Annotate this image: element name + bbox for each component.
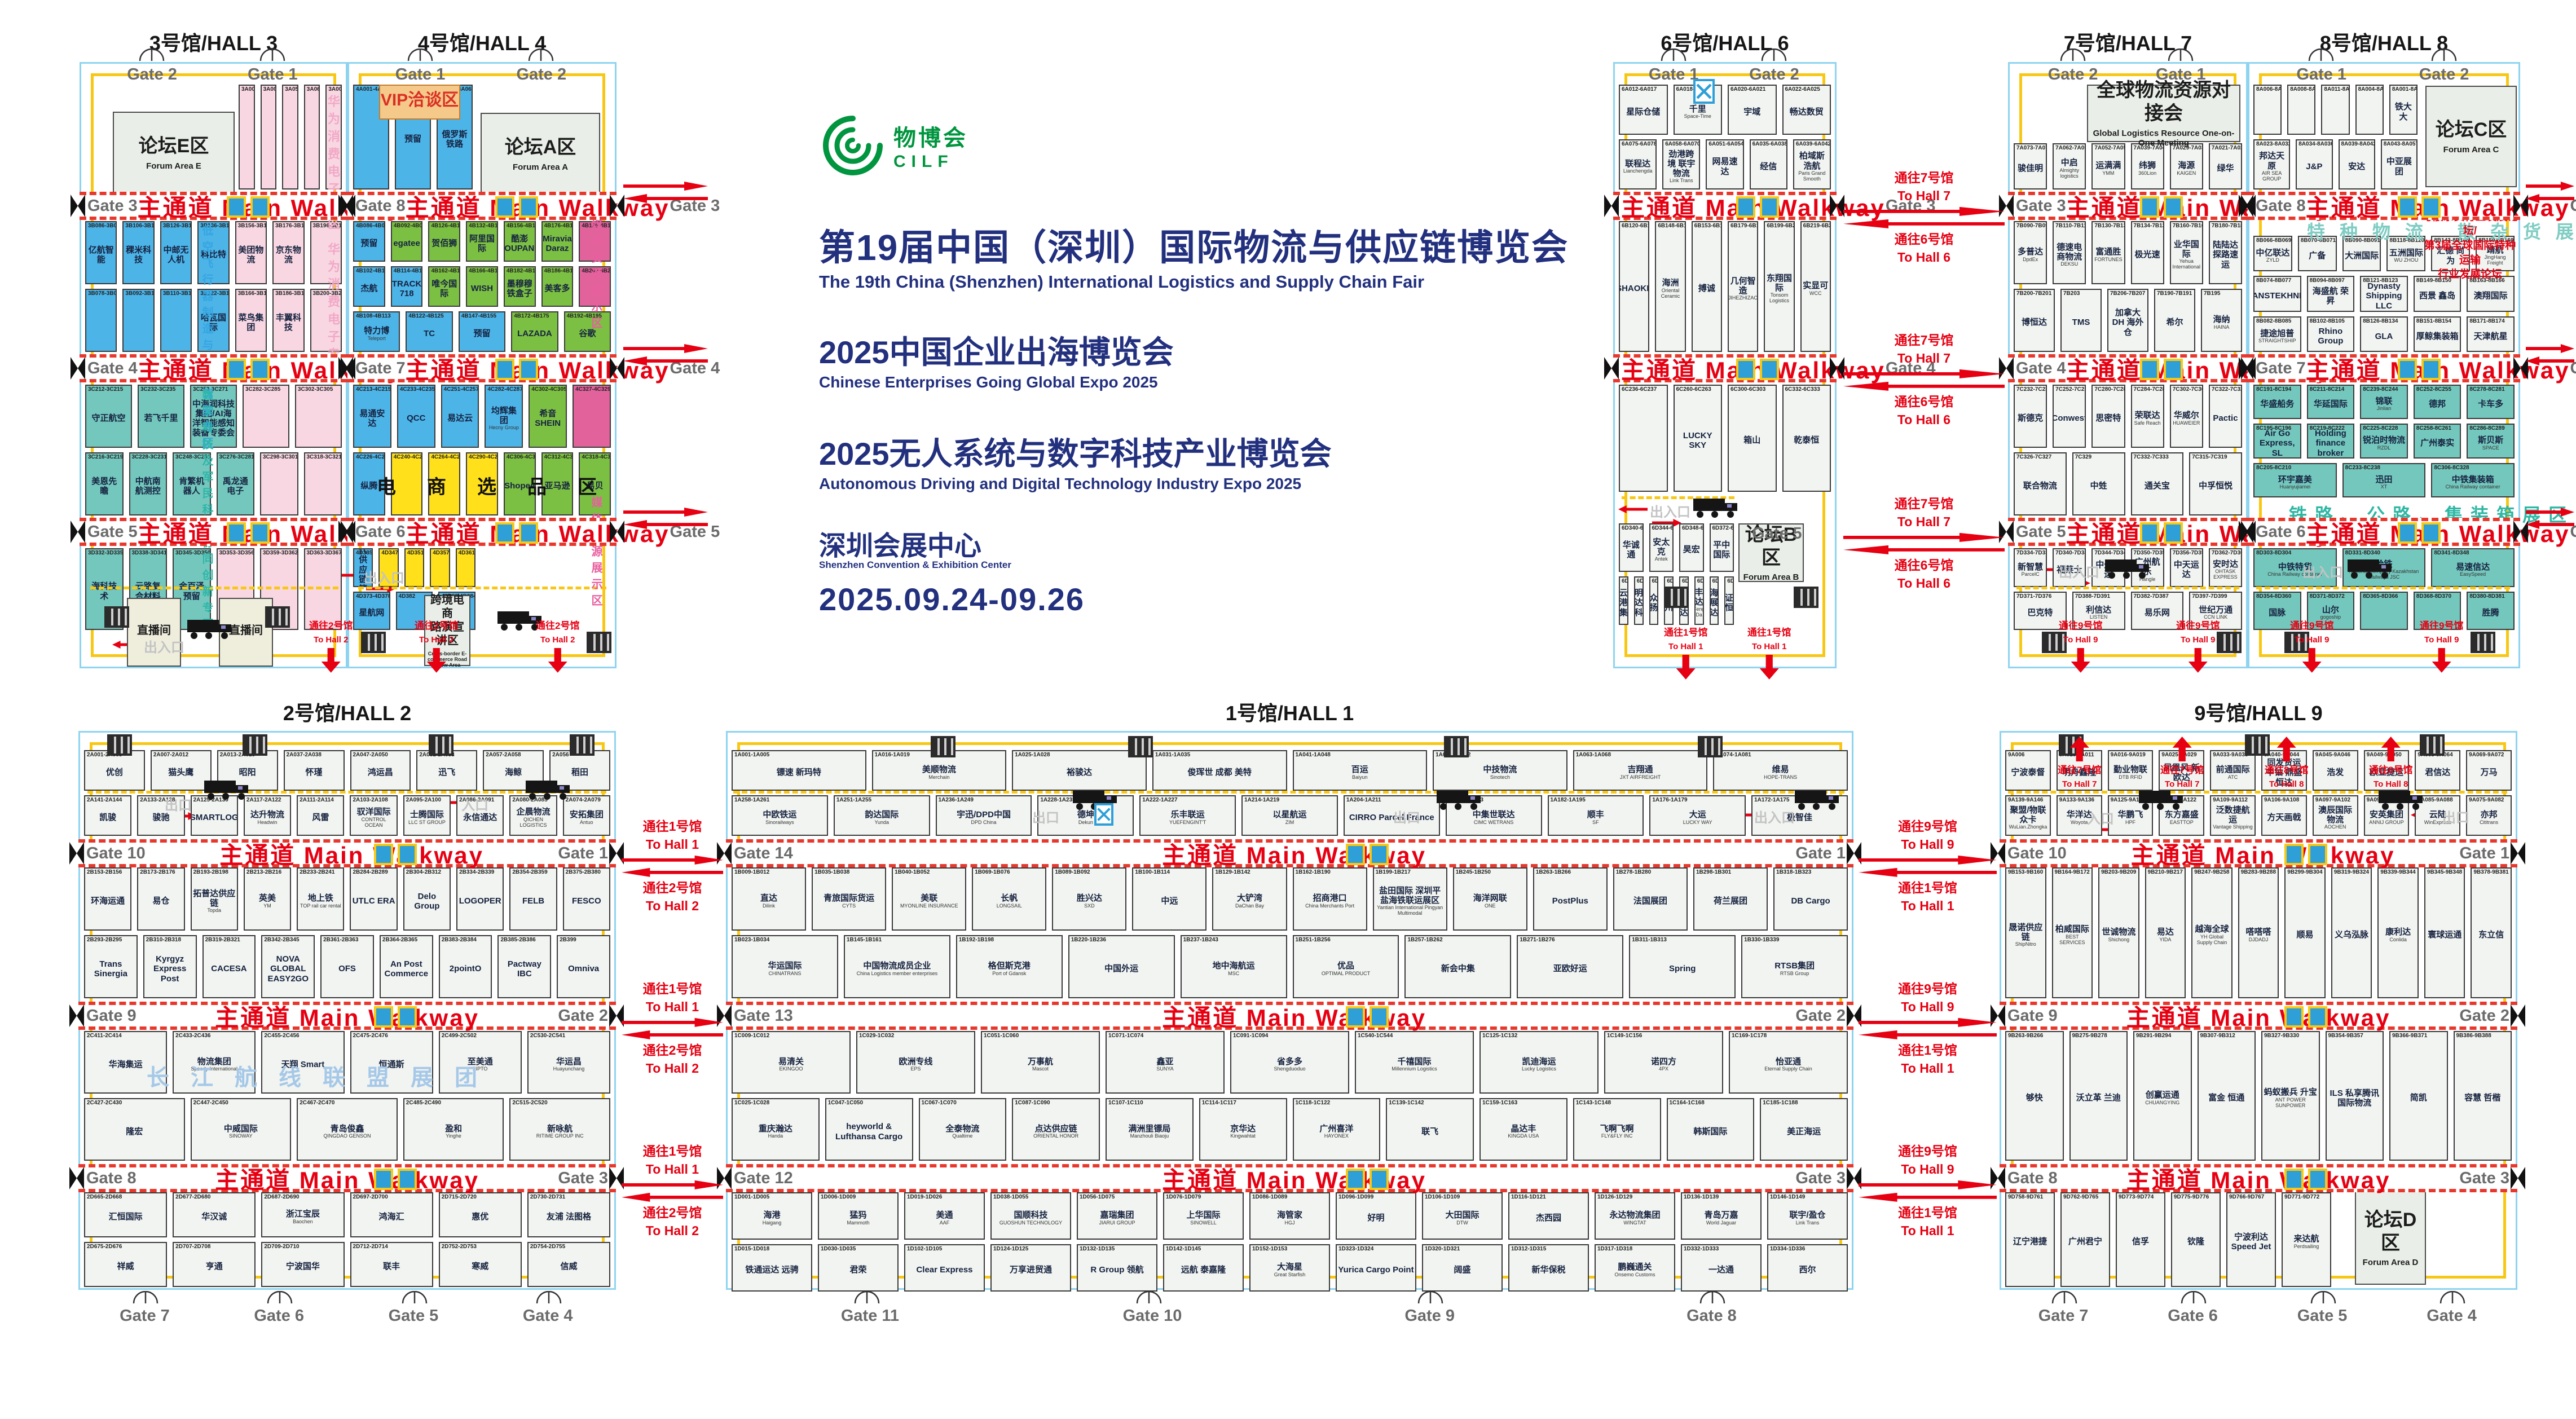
booth-name: 安时达	[2213, 559, 2238, 569]
transfer-label-en: To Hall 6	[1897, 576, 1950, 590]
booth-name: 富金 恒通	[2208, 1093, 2244, 1103]
booth: 2B399Omniva	[557, 935, 610, 998]
booth-id: 2B319-2B321	[205, 937, 240, 943]
gate-label-bottom: Gate 7	[120, 1307, 170, 1325]
transfer-label-en: To Hall 2	[540, 635, 575, 645]
booth-id: 7C252-7C255	[2055, 386, 2086, 393]
booth-id: 1C164-1C168	[1670, 1100, 1705, 1106]
arrow-left-icon	[622, 1030, 723, 1039]
booth-id: 6D356-6D357	[1637, 578, 1644, 584]
hall-title: 4号馆/HALL 4	[347, 27, 617, 56]
booth-id: 6B148-6B152	[1658, 223, 1685, 229]
booth-name: 唯今国际	[430, 279, 458, 299]
booth-id: 1D126-1D129	[1597, 1194, 1632, 1200]
booth-name-en: DaChan Bay	[1235, 904, 1264, 909]
hydrant-icon	[2398, 359, 2441, 380]
hall-gap-transfer	[2526, 182, 2574, 203]
booth: 7A039-7A042纬狮360Lion	[2131, 143, 2164, 190]
hydrant-icon	[227, 522, 270, 544]
booth: 7B134-7B135极光速	[2131, 221, 2164, 284]
booth-name: 怡亚通	[1776, 1057, 1801, 1067]
booth: 7C280-7C283思密特	[2091, 385, 2125, 448]
booth-name-en: MSC	[1228, 971, 1239, 977]
zone-label: 直播间	[137, 624, 171, 637]
booth-name-en: Sinotech	[1490, 775, 1510, 781]
booth-name: ILS 私享腾讯国际物流	[2328, 1089, 2382, 1108]
gate-label-bottom: Gate 10	[1123, 1307, 1182, 1325]
booth-id: 4B156-4B159	[507, 223, 536, 229]
booth-id: 3A068-3A071	[307, 86, 320, 92]
booth-name: 德邦	[2429, 399, 2446, 409]
booth-id: 1B298-1B301	[1696, 869, 1731, 875]
booth: 6A039-6A042柏域斯浩航Paris Grand Smooth	[1793, 139, 1831, 190]
hall-title: 6号馆/HALL 6	[1613, 27, 1837, 56]
booth: 7B206-7B207加拿大DH 海外仓	[2107, 289, 2148, 352]
gate-label-bottom: Gate 8	[1686, 1307, 1737, 1325]
hall-transfer-down: 通往9号馆To Hall 9	[2420, 620, 2463, 673]
booth: 1D124-1D125万享进贸通	[990, 1244, 1071, 1292]
booth-name: 丰翼科技	[275, 313, 302, 333]
event-title1-en: The 19th China (Shenzhen) International …	[819, 272, 1424, 292]
booth-name: 联程达	[1625, 159, 1650, 169]
booth-id: 2A117-2A122	[246, 797, 281, 803]
booth: 9B275-9B278沃立革 兰迪	[2069, 1031, 2128, 1161]
horizontal-zone-label: 长江航线联盟展团	[147, 1059, 499, 1092]
event-logo: 物博会 CILF	[819, 112, 968, 179]
gate-label-top: Gate 2	[2048, 65, 2098, 84]
booth: 7B180-7B183陆陆达 探路速运	[2209, 221, 2242, 284]
booth-name: 美恩先瞻	[87, 477, 121, 496]
booth-id: 4B162-4B165	[431, 268, 460, 274]
booth-name: 华延国际	[2314, 399, 2348, 409]
booth-id: 4D373-4D378	[356, 593, 390, 600]
booth: 2A007-2A012猫头鹰	[151, 750, 212, 791]
booth-row: 6B120-6B133SHAOKE6B148-6B152海洲Oriental C…	[1619, 221, 1831, 352]
booth-id: 1C139-1C142	[1389, 1100, 1424, 1106]
booth-name-en: GUOSHUN TECHNOLOGY	[999, 1220, 1062, 1226]
arrow-down-icon	[322, 648, 341, 673]
booth: 2B319-2B321CACESA	[202, 935, 256, 998]
booth-id: 3C232-3C235	[140, 386, 175, 393]
door-icon	[1417, 1291, 1443, 1306]
hydrant-icon	[1736, 196, 1779, 218]
booth-name: 新咏航	[547, 1124, 573, 1134]
transfer-label: 通往1号馆	[643, 981, 702, 996]
booth-name: 柏域斯浩航	[1795, 151, 1829, 171]
booth: 1C025-1C028重庆瀚达Handa	[732, 1098, 820, 1161]
arrow-right-icon	[1843, 533, 2005, 542]
booth-row: 2B293-2B295Trans Sinergia2B310-2B318Kyrg…	[84, 935, 610, 998]
booth: 8C258-8C261广州泰实	[2414, 424, 2461, 458]
booth: 9B354-9B357ILS 私享腾讯国际物流	[2326, 1031, 2384, 1161]
booth: 9B283-9B288嗒嗒嗒DJDADJ	[2238, 867, 2279, 998]
booth-name: 思密特	[2095, 413, 2121, 423]
booth: 2D677-2D680华汉诚	[173, 1192, 256, 1237]
booth: 8A011-8A012	[2321, 85, 2349, 135]
booth: 7A029-7A032海源KAIGEN	[2170, 143, 2203, 190]
booth: 1D323-1D324Yurica Cargo Point	[1336, 1244, 1416, 1292]
gate-label-bottom: Gate 11	[841, 1307, 899, 1325]
booth: 4C213-4C215易通安达	[353, 385, 391, 448]
booth: 9D758-9D761辽宁港捷	[2005, 1192, 2055, 1287]
booth-name: 博恒达	[2022, 318, 2047, 327]
booth: 7A073-7A077骏佳明	[2014, 143, 2047, 190]
loading-line	[358, 587, 606, 589]
booth: 8B102-8B105Rhino Group	[2307, 316, 2355, 352]
booth-name: 中远	[1161, 896, 1178, 906]
booth: 7C329中甡	[2072, 452, 2125, 515]
booth-id: 8A004-8A005	[2358, 86, 2384, 92]
booth-id: 1A228-1A235	[1040, 797, 1075, 803]
booth-name: 锐泊时物流	[2363, 435, 2405, 445]
booth-id: 9B275-9B278	[2072, 1033, 2107, 1039]
booth-name: 美顺物流	[922, 765, 956, 774]
booth-id: 4B182-4B185	[507, 268, 536, 274]
booth-id: 2B375-2B380	[566, 869, 601, 875]
booth-id: 6A022-6A025	[1785, 86, 1820, 92]
booth: 7D334-7D337新智慧ParcelC	[2014, 548, 2047, 587]
booth-band: 7B090-7B095多普达DpdEx7B110-7B113德速电商物流DEKS…	[2014, 221, 2242, 352]
gate-label-top: Gate 1	[248, 65, 298, 84]
booth: 3A007	[239, 85, 255, 190]
booth-row: 8A023-8A032邦达天原AIR SEA GROUP8A034-8A036J…	[2253, 139, 2418, 190]
booth-id: 7C284-7C285	[2134, 386, 2164, 393]
gate-label-left: Gate 6	[2256, 523, 2306, 541]
entrance-exit-label: 出入口	[364, 567, 404, 587]
booth-id: 4D382	[399, 593, 415, 600]
booth-name-en: Shichong	[2108, 937, 2130, 943]
booth-name-en: DPD China	[971, 820, 997, 826]
booth-id: 4B122-4B125	[408, 313, 443, 319]
booth-id: 1D142-1D145	[1166, 1246, 1201, 1252]
booth: 9B319-9B324义乌泓脉	[2331, 867, 2372, 998]
booth-id: 3B166-3B175	[238, 290, 267, 297]
booth: 3B156-3B163美团物流	[235, 221, 267, 284]
booth-row: 8B082-8B085捷途旭普STRAIGHTSHIP8B102-8B105Rh…	[2253, 316, 2515, 352]
gate-label-right: Gate 1	[2459, 844, 2509, 863]
booth-name: LOGOPER	[459, 896, 501, 906]
booth: 4B166-4B169WISH	[466, 266, 498, 307]
booth: 8B082-8B085捷途旭普STRAIGHTSHIP	[2253, 316, 2301, 352]
booth-row: 6A012-6A017星际仓储6A018-6A019千里Space-Time6A…	[1619, 85, 1831, 135]
booth: 2D712-2D714联丰	[350, 1242, 433, 1287]
booth-name: 中国物流成员企业	[863, 961, 931, 971]
booth-band: 9D758-9D761辽宁港捷9D762-9D765广州君宁9D773-9D77…	[2005, 1192, 2331, 1287]
booth-name: 来达航	[2293, 1234, 2319, 1244]
booth-name: 国顺科技	[1014, 1210, 1047, 1220]
booth-name: 康利达	[2385, 927, 2411, 937]
walkway-label: 主通道 Main Walkway	[219, 836, 484, 871]
booth: 6C260-6C263LUCKY SKY	[1674, 385, 1723, 492]
booth: 1D076-1D079上华国际SINOWELL	[1163, 1192, 1244, 1240]
booth-name: 捷途旭普	[2260, 329, 2294, 338]
truck-icon	[2138, 788, 2186, 814]
transfer-label-en: To Hall 2	[646, 898, 699, 913]
booth-name: 祥威	[117, 1262, 134, 1271]
booth-id: 7B195	[2204, 290, 2220, 297]
booth-name-en: Lucky Logistics	[1522, 1067, 1556, 1072]
booth: 7B110-7B113德速电商物流DEKSU	[2053, 221, 2086, 284]
booth-name: 晶达丰	[1511, 1124, 1536, 1134]
door-icon	[2060, 49, 2086, 64]
booth-name: 胜腾	[2482, 608, 2499, 618]
booth-name: 昭阳	[239, 768, 256, 777]
door-icon	[1699, 1291, 1725, 1306]
dock-door-icon	[1698, 736, 1723, 757]
booth: 1C143-1C148飞啊飞啊FLY&FLY INC	[1573, 1098, 1661, 1161]
booth-name-en: FLY&FLY INC	[1601, 1134, 1633, 1139]
walkway-label: 主通道 Main Walkway	[2131, 836, 2396, 871]
booth-name-en: Vantage Shipping	[2213, 825, 2252, 830]
booth: 1D317-1D318鹏巍通关Onsemo Customs	[1595, 1244, 1675, 1292]
gate-label-left: Gate 5	[2016, 523, 2066, 541]
booth-row: 9B153-9B160晟诺供应链ShipNitro9B164-9B172柏威国际…	[2005, 867, 2512, 998]
booth-name: 东翔国际	[1766, 274, 1792, 293]
booth-id: 8B126-8B134	[2363, 318, 2398, 324]
arrow-left-icon	[623, 194, 708, 203]
booth: 1C139-1C142联飞	[1386, 1098, 1474, 1161]
booth: 2B293-2B295Trans Sinergia	[84, 935, 138, 998]
entrance-exit-label: 出口	[2442, 807, 2469, 826]
booth-id: 7D371-7D376	[2016, 593, 2051, 600]
booth-name: 安太克	[1652, 537, 1672, 557]
booth-name-en: Almighty logistics	[2055, 168, 2084, 179]
booth-name: 业华国际	[2172, 240, 2201, 259]
booth: 1C047-1C050heyworld & Lufthansa Cargo	[825, 1098, 913, 1161]
booth-id: 4C318-4C321	[582, 454, 611, 460]
booth-id: 1C143-1C148	[1576, 1100, 1611, 1106]
booth: 1D152-1D153大海星Great Starfish	[1249, 1244, 1330, 1292]
booth-name: DB Cargo	[1791, 896, 1830, 906]
booth: 7B130-7B133富通胜FORTUNES	[2091, 221, 2125, 284]
booth: 2A103-2A108驭洋国际CONTROL OCEAN	[350, 795, 397, 836]
booth-name-en: Hecny Group	[489, 425, 519, 431]
booth-name: 沃立革 兰迪	[2076, 1093, 2121, 1103]
booth-id: 4B176-4B179	[544, 223, 574, 229]
gate-label-top: Gate 1	[395, 65, 446, 84]
booth-id: 1D332-1D333	[1684, 1246, 1719, 1252]
booth-name-en: Port of Gdansk	[992, 971, 1026, 977]
booth: 2C530-2C541华运昌Huayunchang	[527, 1031, 610, 1094]
booth-id: 7D334-7D337	[2016, 550, 2047, 556]
booth-name-en: Sinorailways	[765, 820, 794, 826]
booth-name: 阔盛	[1454, 1265, 1470, 1275]
booth-name: 青旅国际货运	[824, 893, 874, 903]
booth-name: 陆陆达 探路速运	[2211, 240, 2240, 270]
booth-name-en: WINGTAT	[1623, 1220, 1646, 1226]
main-walkway: Gate 4主通道 Main WalkwayGate 7	[80, 354, 347, 382]
booth-name: Air Go Express, SL	[2256, 429, 2299, 458]
booth-name: 中国外运	[1104, 964, 1138, 973]
transfer-label: 通往1号馆	[1664, 627, 1707, 638]
booth-name-en: DpdEx	[2023, 257, 2038, 263]
transfer-label: 通往2号馆	[643, 1205, 702, 1220]
booth-name: 海鲸	[505, 768, 522, 777]
booth: 7B200-7B201博恒达	[2014, 289, 2055, 352]
transfer-label-en: To Hall 9	[2181, 635, 2215, 645]
transfer-label: 通往7号馆	[1895, 496, 1954, 511]
booth-id: 8C306-8C328	[2434, 465, 2469, 471]
booth-id: 1D116-1D121	[1511, 1194, 1546, 1200]
booth: 6D372-6D373平中国际	[1710, 523, 1734, 572]
booth-row: 1B023-1B034华运国际CHINATRANS1B145-1B161中国物流…	[732, 935, 1848, 998]
booth-name: 希尔	[2166, 318, 2183, 327]
hydrant-icon	[2398, 196, 2441, 218]
transfer-label-en: To Hall 8	[2374, 779, 2408, 789]
booth-name: 杰西园	[1536, 1213, 1561, 1223]
booth: 8A034-8A036J&P	[2296, 139, 2332, 190]
booth-name: 永达物流集团	[1609, 1210, 1660, 1220]
booth-name: 海洋网联	[1473, 893, 1507, 903]
logo-text-zh: 物博会	[893, 120, 968, 152]
transfer-label: 通往2号馆	[415, 620, 458, 632]
booth: 3C212-3C215守正航空	[85, 385, 132, 448]
booth-name: 守正航空	[91, 413, 125, 423]
booth-name: 俄罗斯铁路	[439, 130, 470, 149]
hall-title: 8号馆/HALL 8	[2248, 27, 2520, 56]
booth-id: 7A062-7A067	[2055, 145, 2086, 151]
booth: 1C051-1C060万事航Mascot	[981, 1031, 1100, 1094]
booth: 6A058-6A070劲港跨境 联宇物流Link Trans	[1662, 139, 1700, 190]
booth-id: 2D665-2D668	[87, 1194, 122, 1200]
booth-id: 7D340-7D343	[2055, 550, 2086, 556]
booth-id: 3D332-3D335	[88, 550, 123, 556]
booth-id: 8A043-8A057	[2384, 141, 2418, 147]
arrow-right-icon	[623, 182, 708, 191]
booth: 9A106-9A108方天画戟	[2261, 795, 2307, 836]
booth: 2B385-2B386Pactway IBC	[497, 935, 551, 998]
booth: 3C282-3C285	[243, 385, 289, 448]
booth-row: 7C326-7C327联合物流7C329中甡7C332-7C333通关宝7C31…	[2014, 452, 2242, 515]
booth-id: 8C252-8C255	[2416, 386, 2451, 393]
hall-gap-transfer	[623, 508, 708, 529]
booth-id: 1D152-1D153	[1252, 1246, 1287, 1252]
booth: 9B210-9B217易达YIDA	[2145, 867, 2186, 998]
booth: 1B069-1B076长帆LONGSAIL	[972, 867, 1046, 931]
booth: 2A095-2A100士腾国际LLC ST GROUP	[403, 795, 451, 836]
gate-label-right: Gate 3	[2459, 1169, 2509, 1188]
booth: 1C164-1C168韩斯国际	[1667, 1098, 1755, 1161]
booth-name: 中天运达	[2172, 560, 2201, 580]
booth: 9D773-9D774信孚	[2116, 1192, 2165, 1287]
booth-id: 4C240-4C243	[394, 454, 423, 460]
booth-id: 9B153-9B160	[2008, 869, 2043, 875]
door-icon	[133, 1291, 158, 1306]
main-walkway: Gate 14主通道 Main WalkwayGate 1	[726, 839, 1853, 867]
arrow-right-icon	[2526, 508, 2574, 517]
hydrant-icon	[1346, 1169, 1389, 1190]
door-icon	[2431, 49, 2457, 64]
booth: 1B145-1B161中国物流成员企业China Logistics membe…	[844, 935, 950, 998]
booth-name-en: Baiyun	[1352, 775, 1368, 781]
booth-id: 2A103-2A108	[353, 797, 387, 803]
booth-name-en: STRAIGHTSHIP	[2258, 338, 2296, 344]
booth-id: 8C258-8C261	[2416, 425, 2451, 431]
booth-name-en: CCN LINK	[2204, 615, 2227, 620]
booth-id: 2A111-2A114	[300, 797, 334, 803]
booth-band: 2C411-2C414华海集运2C433-2C436物流集团Speedy Int…	[84, 1031, 610, 1161]
booth-id: 4B132-4B137	[469, 223, 498, 229]
booth: 2C447-2C450中威国际SINOWAY	[191, 1098, 292, 1161]
booth-name: 极光速	[2135, 250, 2160, 259]
booth-id: 9A106-9A108	[2264, 797, 2299, 803]
booth: 6D340-6D341华诚通	[1619, 523, 1644, 572]
booth-name-en: Millennium Logistics	[1392, 1067, 1437, 1072]
transfer-label: 通往9号馆	[1898, 981, 1957, 996]
booth-id: 7B200-7B201	[2016, 290, 2051, 297]
booth-name: Yurica Cargo Point	[1338, 1265, 1414, 1275]
booth-id: 9B291-9B294	[2136, 1033, 2171, 1039]
booth: 2D665-2D668汇恒国际	[84, 1192, 167, 1237]
transfer-label: 通往8号馆	[2265, 765, 2308, 776]
booth-id: 1C114-1C117	[1202, 1100, 1236, 1106]
booth: 2B375-2B380FESCO	[563, 867, 610, 931]
booth-band: 9B153-9B160晟诺供应链ShipNitro9B164-9B172柏威国际…	[2005, 867, 2512, 998]
booth-name-en: EPS	[910, 1067, 921, 1072]
booth: 8C286-8C289斯贝斯SPACE	[2467, 424, 2515, 458]
zone-label-en: Global Logistics Resource One-on-One Mee…	[2088, 129, 2239, 148]
booth-name-en: Yinghe	[446, 1134, 461, 1139]
booth: 9A063-9A064君信达	[2415, 750, 2460, 791]
booth-name-en: JIHEZHIZAO	[1728, 296, 1758, 301]
booth: 2B361-2B363OFS	[320, 935, 374, 998]
hall-transfer-down: 通往2号馆To Hall 2	[536, 620, 579, 673]
booth-id: 2C485-2C490	[406, 1100, 441, 1106]
booth-name: 中欧铁运	[763, 810, 796, 819]
booth-name-en: 360Lion	[2138, 171, 2156, 177]
booth-name: 铁大大	[2392, 102, 2415, 122]
booth: 3C228-3C231中航南航测控	[129, 452, 168, 515]
booth-name-en: AOCHEN	[2324, 825, 2346, 830]
booth-name: 星航网	[359, 608, 384, 618]
booth: 8C205-8C210环宇嘉美Huanyujiamei	[2253, 463, 2337, 497]
booth-name-en: DEKSU	[2060, 262, 2078, 267]
gate-label-left: Gate 5	[87, 523, 138, 541]
booth-id: 3B106-3B109	[125, 223, 154, 229]
event-venue-zh: 深圳会展中心	[819, 523, 981, 563]
booth: 4B114-4B117TRACK 718	[391, 266, 423, 307]
booth-name: 迅飞	[438, 768, 455, 777]
booth-name: 英美	[259, 893, 276, 903]
booth-name: 君荣	[849, 1265, 866, 1275]
booth: 4B122-4B125TC	[406, 311, 452, 352]
booth-name: 安达	[2348, 162, 2365, 171]
booth-name: 华威尔	[2174, 411, 2199, 420]
booth-id: 6D369	[1712, 578, 1719, 584]
booth-id: 2A095-2A100	[406, 797, 441, 803]
booth: 1B298-1B301荷兰展团	[1693, 867, 1768, 931]
main-walkway: Gate 6主通道 Main WalkwayGate 5	[347, 518, 617, 546]
transfer-label-en: To Hall 1	[646, 999, 699, 1014]
booth-id: 8A006-8A007	[2256, 86, 2282, 92]
booth-name: 海源	[2178, 161, 2195, 170]
booth-id: 1B023-1B034	[734, 937, 769, 943]
truck-icon	[2377, 788, 2426, 814]
booth: 1B089-1B092胜兴达SXD	[1052, 867, 1126, 931]
booth-id: 4B114-4B117	[394, 268, 423, 274]
booth-name: 西尔	[1799, 1265, 1816, 1275]
booth-id: 2C411-2C414	[87, 1033, 122, 1039]
booth-name-en: Teleport	[368, 336, 386, 342]
gate-label-right: Gate 2	[1795, 1007, 1846, 1025]
booth-band: 7C232-7C235斯德克7C252-7C255Conwest7C280-7C…	[2014, 385, 2242, 515]
booth: 1B330-1B339RTSB集团RTSB Group	[1741, 935, 1848, 998]
booth-id: 6C260-6C263	[1676, 386, 1711, 393]
booth: 1A214-1A219以星航运ZIM	[1241, 795, 1338, 836]
booth-name-en: KAIGEN	[2177, 171, 2196, 177]
gate-label-right: Gate 3	[558, 1169, 608, 1188]
booth-name: 企晨物流	[517, 807, 551, 817]
